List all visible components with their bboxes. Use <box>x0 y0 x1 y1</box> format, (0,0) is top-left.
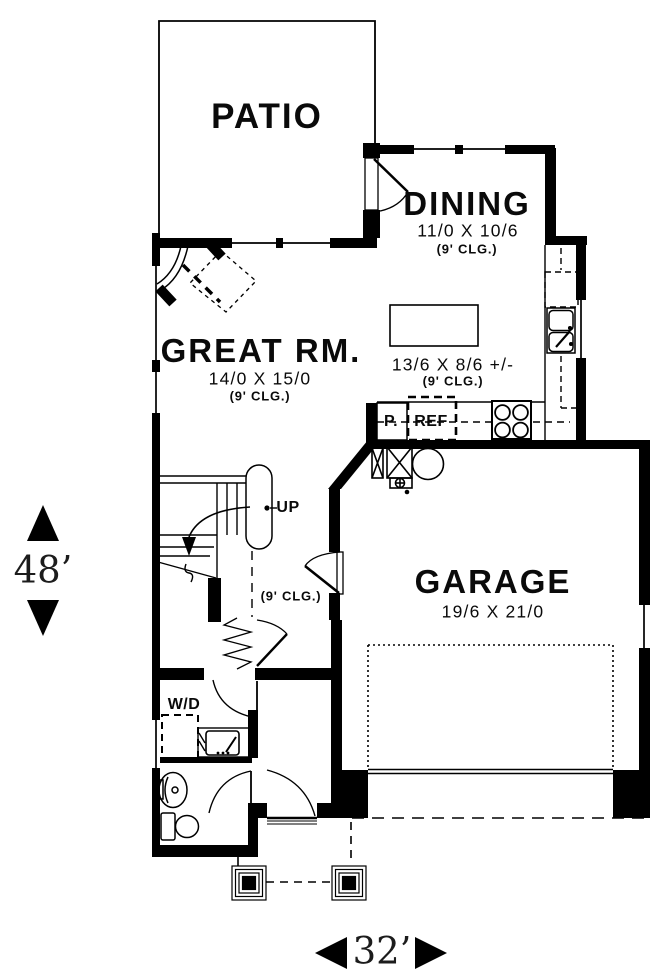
dining-ceiling-note: (9' CLG.) <box>437 242 498 257</box>
floor-plan: PATIO DINING 11/0 X 10/6 (9' CLG.) GREAT… <box>0 0 650 973</box>
furnace-icon <box>372 448 383 478</box>
great-room-label: GREAT RM. <box>161 332 362 370</box>
parking-area-outline <box>368 645 613 767</box>
dining-label: DINING <box>403 185 531 223</box>
laundry-sink-icon <box>198 728 251 757</box>
hall-ceiling-note: (9' CLG.) <box>261 589 322 604</box>
dining-dimensions: 11/0 X 10/6 <box>417 221 518 242</box>
stove-icon <box>492 401 531 439</box>
vertical-dimension-label: 48’ <box>14 549 73 592</box>
patio-label: PATIO <box>211 97 323 137</box>
water-heater-icon <box>387 447 444 494</box>
porch-column-icon <box>232 866 266 900</box>
pedestal-sink-icon <box>156 773 187 808</box>
kitchen-dimensions: 13/6 X 8/6 +/- <box>392 355 514 376</box>
dimension-arrow-up-icon <box>27 505 59 541</box>
front-door <box>267 770 317 824</box>
pantry-label: P. <box>384 413 398 431</box>
floor-plan-linework <box>0 0 650 973</box>
laundry-label: W/D <box>168 696 201 714</box>
bathroom-door <box>209 771 251 814</box>
kitchen-ceiling-note: (9' CLG.) <box>423 374 484 389</box>
refrigerator-label: REF <box>414 413 448 431</box>
roof-overhang-line <box>238 818 648 882</box>
fireplace-icon <box>157 243 256 312</box>
dimension-arrow-down-icon <box>27 600 59 636</box>
horizontal-dimension-label: 32’ <box>353 930 412 973</box>
great-room-dimensions: 14/0 X 15/0 <box>209 369 312 390</box>
washer-dryer-icon <box>162 715 198 758</box>
porch-column-icon <box>332 866 366 900</box>
kitchen-island <box>390 305 478 346</box>
toilet-icon <box>161 813 199 840</box>
patio-door <box>365 158 408 211</box>
closet-rod-icon <box>224 618 251 669</box>
garage-dimensions: 19/6 X 21/0 <box>442 602 545 623</box>
kitchen-sink-icon <box>547 308 575 353</box>
stairs-up-label: UP <box>276 499 299 517</box>
great-room-ceiling-note: (9' CLG.) <box>230 389 291 404</box>
garage-door-icon <box>368 770 613 774</box>
closet-door <box>257 620 287 666</box>
dimension-arrow-right-icon <box>415 937 447 969</box>
dimension-arrow-left-icon <box>315 937 347 969</box>
garage-label: GARAGE <box>415 563 572 601</box>
